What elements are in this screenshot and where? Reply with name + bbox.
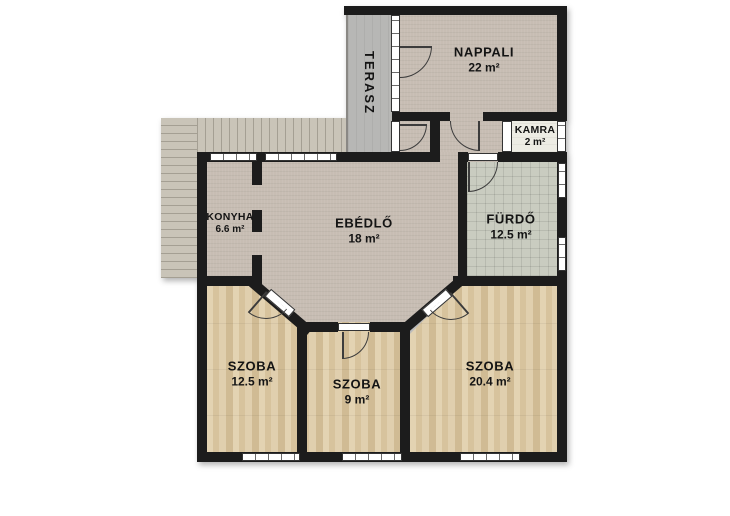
window-furdo-2 [558, 237, 566, 271]
wall-szoba1-szoba2 [297, 322, 307, 462]
door-szoba2 [338, 323, 370, 331]
floorplan-drawing: TERASZ NAPPALI 22 m² KAMRA 2 m² KONYHA 6… [0, 0, 730, 516]
room-name: TERASZ [361, 51, 377, 115]
room-label-ebedlo: EBÉDLŐ 18 m² [335, 215, 393, 246]
room-name: SZOBA [333, 376, 382, 392]
room-label-szoba2: SZOBA 9 m² [333, 376, 382, 407]
window-konyha-top [210, 153, 257, 161]
room-label-furdo: FÜRDŐ 12.5 m² [486, 211, 535, 242]
room-area: 2 m² [515, 137, 556, 150]
door-terasz-vestibule [391, 121, 400, 152]
room-area: 18 m² [335, 232, 393, 247]
door-furdo [468, 153, 498, 161]
room-name: NAPPALI [454, 44, 514, 60]
room-name: SZOBA [466, 358, 515, 374]
window-szoba1-bottom [242, 453, 300, 461]
floorplan-image: TERASZ NAPPALI 22 m² KAMRA 2 m² KONYHA 6… [0, 0, 730, 516]
room-name: EBÉDLŐ [335, 215, 393, 231]
window-terasz-nappali [391, 15, 400, 112]
wall-top [344, 6, 567, 15]
wall-left [197, 152, 207, 462]
room-area: 6.6 m² [206, 224, 253, 237]
room-label-terasz: TERASZ [361, 51, 377, 115]
room-area: 22 m² [454, 61, 514, 76]
wall-szoba2-szoba3 [400, 322, 410, 462]
room-label-nappali: NAPPALI 22 m² [454, 44, 514, 75]
window-ebedlo-top [265, 153, 337, 161]
deck-left [161, 118, 197, 278]
window-szoba3-bottom [460, 453, 520, 461]
door-kamra [502, 121, 512, 152]
room-label-kamra: KAMRA 2 m² [515, 124, 556, 150]
wall-right-lower [557, 152, 567, 462]
wall-right-upper [557, 6, 567, 121]
room-area: 20.4 m² [466, 375, 515, 390]
window-kamra-right [557, 121, 566, 152]
room-area: 9 m² [333, 393, 382, 408]
room-name: KONYHA [206, 211, 253, 224]
room-name: SZOBA [228, 358, 277, 374]
room-label-szoba3: SZOBA 20.4 m² [466, 358, 515, 389]
room-name: FÜRDŐ [486, 211, 535, 227]
window-szoba2-bottom [342, 453, 402, 461]
wall-nappali-bottom-right [483, 112, 558, 121]
room-area: 12.5 m² [228, 375, 277, 390]
deck-top [197, 118, 346, 152]
wall-furdo-left [458, 152, 467, 286]
window-furdo-1 [558, 163, 566, 198]
room-name: KAMRA [515, 124, 556, 137]
room-area: 12.5 m² [486, 228, 535, 243]
wall-vestibule-divider [430, 112, 440, 162]
room-label-konyha: KONYHA 6.6 m² [206, 211, 253, 237]
wall-nappali-bottom-left [392, 112, 450, 121]
wall-furdo-bottom [453, 276, 567, 286]
room-label-szoba1: SZOBA 12.5 m² [228, 358, 277, 389]
